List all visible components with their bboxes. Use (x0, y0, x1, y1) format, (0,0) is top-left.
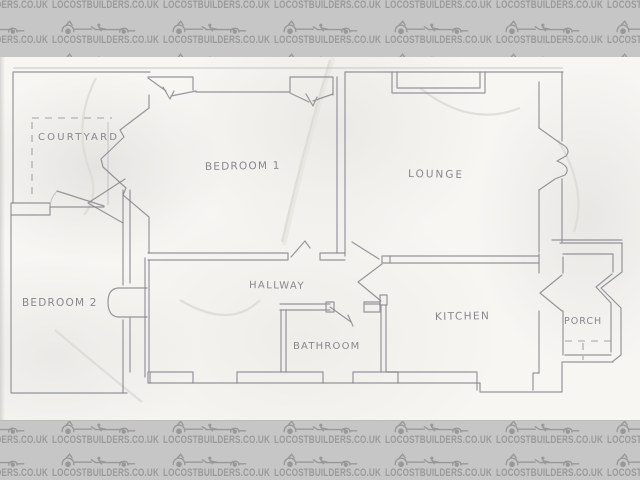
kit-car-logo-icon (0, 453, 31, 468)
watermark-text: LOCOSTBUILDERS.CO.UK (163, 0, 270, 11)
floor-plan-drawing: COURTYARD BEDROOM 1 LOUNGE BEDROOM 2 HAL… (0, 57, 640, 420)
watermark-text: LOCOSTBUILDERS.CO.UK (52, 0, 159, 11)
label-bedroom2: BEDROOM 2 (22, 297, 98, 309)
watermark-text: LOCOSTBUILDERS.CO.UK (496, 34, 603, 46)
kit-car-logo-icon (0, 20, 31, 35)
label-porch: PORCH (564, 316, 602, 327)
watermark-band-top: LOCOSTBUILDERS.CO.UK LOCOSTBUILDERS.CO.U… (0, 0, 640, 58)
watermark-tile: LOCOSTBUILDERS.CO.UK (607, 420, 640, 453)
dashed-markings (32, 118, 614, 360)
kit-car-logo-icon (276, 453, 364, 468)
watermark-tile: LOCOSTBUILDERS.CO.UK (607, 453, 640, 480)
kit-car-logo-icon (498, 453, 586, 468)
watermark-tile: LOCOSTBUILDERS.CO.UK (496, 453, 607, 480)
watermark-tile: LOCOSTBUILDERS.CO.UK (385, 453, 496, 480)
label-courtyard: COURTYARD (38, 132, 119, 143)
label-lounge: LOUNGE (408, 168, 464, 181)
watermark-row: LOCOSTBUILDERS.CO.UK LOCOSTBUILDERS.CO.U… (0, 0, 640, 18)
watermark-tile: LOCOSTBUILDERS.CO.UK (163, 420, 274, 453)
label-bedroom1: BEDROOM 1 (205, 160, 281, 173)
label-hallway: HALLWAY (249, 280, 305, 292)
kit-car-logo-icon (498, 420, 586, 435)
watermark-text: LOCOSTBUILDERS.CO.UK (385, 0, 492, 11)
watermark-text: LOCOSTBUILDERS.CO.UK (496, 467, 603, 479)
watermark-text: LOCOSTBUILDERS.CO.UK (163, 434, 270, 446)
kit-car-logo-icon (387, 420, 475, 435)
kit-car-logo-icon (165, 20, 253, 35)
watermark-text: LOCOSTBUILDERS.CO.UK (52, 34, 159, 46)
kit-car-logo-icon (276, 20, 364, 35)
watermark-tile: LOCOSTBUILDERS.CO.UK (52, 420, 163, 453)
kit-car-logo-icon (609, 420, 640, 435)
scanned-floorplan-page: LOCOSTBUILDERS.CO.UK LOCOSTBUILDERS.CO.U… (0, 0, 640, 480)
watermark-text: LOCOSTBUILDERS.CO.UK (274, 434, 381, 446)
watermark-text: LOCOSTBUILDERS.CO.UK (52, 467, 159, 479)
kit-car-logo-icon (276, 420, 364, 435)
watermark-text: LOCOSTBUILDERS.CO.UK (52, 434, 159, 446)
watermark-text: LOCOSTBUILDERS.CO.UK (0, 34, 48, 46)
watermark-text: LOCOSTBUILDERS.CO.UK (274, 467, 381, 479)
watermark-tile: LOCOSTBUILDERS.CO.UK (385, 0, 496, 18)
watermark-tile: LOCOSTBUILDERS.CO.UK (0, 420, 52, 453)
kit-car-logo-icon (498, 20, 586, 35)
kit-car-logo-icon (54, 420, 142, 435)
watermark-text: LOCOSTBUILDERS.CO.UK (0, 0, 48, 11)
watermark-text: LOCOSTBUILDERS.CO.UK (274, 34, 381, 46)
watermark-text: LOCOSTBUILDERS.CO.UK (496, 0, 603, 11)
watermark-text: LOCOSTBUILDERS.CO.UK (607, 34, 640, 46)
kit-car-logo-icon (609, 453, 640, 468)
watermark-tile: LOCOSTBUILDERS.CO.UK (0, 453, 52, 480)
watermark-tile: LOCOSTBUILDERS.CO.UK (0, 0, 52, 18)
watermark-tile: LOCOSTBUILDERS.CO.UK (607, 0, 640, 18)
watermark-text: LOCOSTBUILDERS.CO.UK (163, 467, 270, 479)
kit-car-logo-icon (387, 20, 475, 35)
watermark-tile: LOCOSTBUILDERS.CO.UK (607, 20, 640, 53)
watermark-tile: LOCOSTBUILDERS.CO.UK (274, 420, 385, 453)
watermark-tile: LOCOSTBUILDERS.CO.UK (52, 0, 163, 18)
watermark-text: LOCOSTBUILDERS.CO.UK (607, 0, 640, 11)
watermark-tile: LOCOSTBUILDERS.CO.UK (274, 0, 385, 18)
watermark-text: LOCOSTBUILDERS.CO.UK (607, 467, 640, 479)
kit-car-logo-icon (165, 453, 253, 468)
watermark-text: LOCOSTBUILDERS.CO.UK (385, 467, 492, 479)
label-bathroom: BATHROOM (293, 341, 360, 352)
watermark-band-bottom: LOCOSTBUILDERS.CO.UK LOCOSTBUILDERS.CO.U… (0, 420, 640, 480)
watermark-row: LOCOSTBUILDERS.CO.UK LOCOSTBUILDERS.CO.U… (0, 420, 640, 453)
room-labels: COURTYARD BEDROOM 1 LOUNGE BEDROOM 2 HAL… (22, 132, 602, 352)
watermark-tile: LOCOSTBUILDERS.CO.UK (385, 420, 496, 453)
watermark-text: LOCOSTBUILDERS.CO.UK (274, 0, 381, 11)
kit-car-logo-icon (54, 20, 142, 35)
watermark-tile: LOCOSTBUILDERS.CO.UK (52, 20, 163, 53)
watermark-row: LOCOSTBUILDERS.CO.UK LOCOSTBUILDERS.CO.U… (0, 453, 640, 480)
watermark-tile: LOCOSTBUILDERS.CO.UK (385, 20, 496, 53)
watermark-text: LOCOSTBUILDERS.CO.UK (385, 434, 492, 446)
watermark-tile: LOCOSTBUILDERS.CO.UK (0, 20, 52, 53)
watermark-text: LOCOSTBUILDERS.CO.UK (0, 467, 48, 479)
kit-car-logo-icon (609, 20, 640, 35)
watermark-tile: LOCOSTBUILDERS.CO.UK (274, 20, 385, 53)
watermark-text: LOCOSTBUILDERS.CO.UK (607, 434, 640, 446)
watermark-tile: LOCOSTBUILDERS.CO.UK (163, 20, 274, 53)
watermark-tile: LOCOSTBUILDERS.CO.UK (163, 0, 274, 18)
label-kitchen: KITCHEN (435, 310, 490, 323)
watermark-row: LOCOSTBUILDERS.CO.UK LOCOSTBUILDERS.CO.U… (0, 20, 640, 53)
watermark-tile: LOCOSTBUILDERS.CO.UK (274, 453, 385, 480)
watermark-tile: LOCOSTBUILDERS.CO.UK (496, 20, 607, 53)
kit-car-logo-icon (165, 420, 253, 435)
watermark-tile: LOCOSTBUILDERS.CO.UK (496, 420, 607, 453)
watermark-tile: LOCOSTBUILDERS.CO.UK (163, 453, 274, 480)
watermark-text: LOCOSTBUILDERS.CO.UK (163, 34, 270, 46)
watermark-text: LOCOSTBUILDERS.CO.UK (496, 434, 603, 446)
scanned-paper: COURTYARD BEDROOM 1 LOUNGE BEDROOM 2 HAL… (0, 57, 640, 420)
kit-car-logo-icon (54, 453, 142, 468)
watermark-tile: LOCOSTBUILDERS.CO.UK (496, 0, 607, 18)
watermark-text: LOCOSTBUILDERS.CO.UK (385, 34, 492, 46)
kit-car-logo-icon (387, 453, 475, 468)
watermark-tile: LOCOSTBUILDERS.CO.UK (52, 453, 163, 480)
watermark-text: LOCOSTBUILDERS.CO.UK (0, 434, 48, 446)
kit-car-logo-icon (0, 420, 31, 435)
